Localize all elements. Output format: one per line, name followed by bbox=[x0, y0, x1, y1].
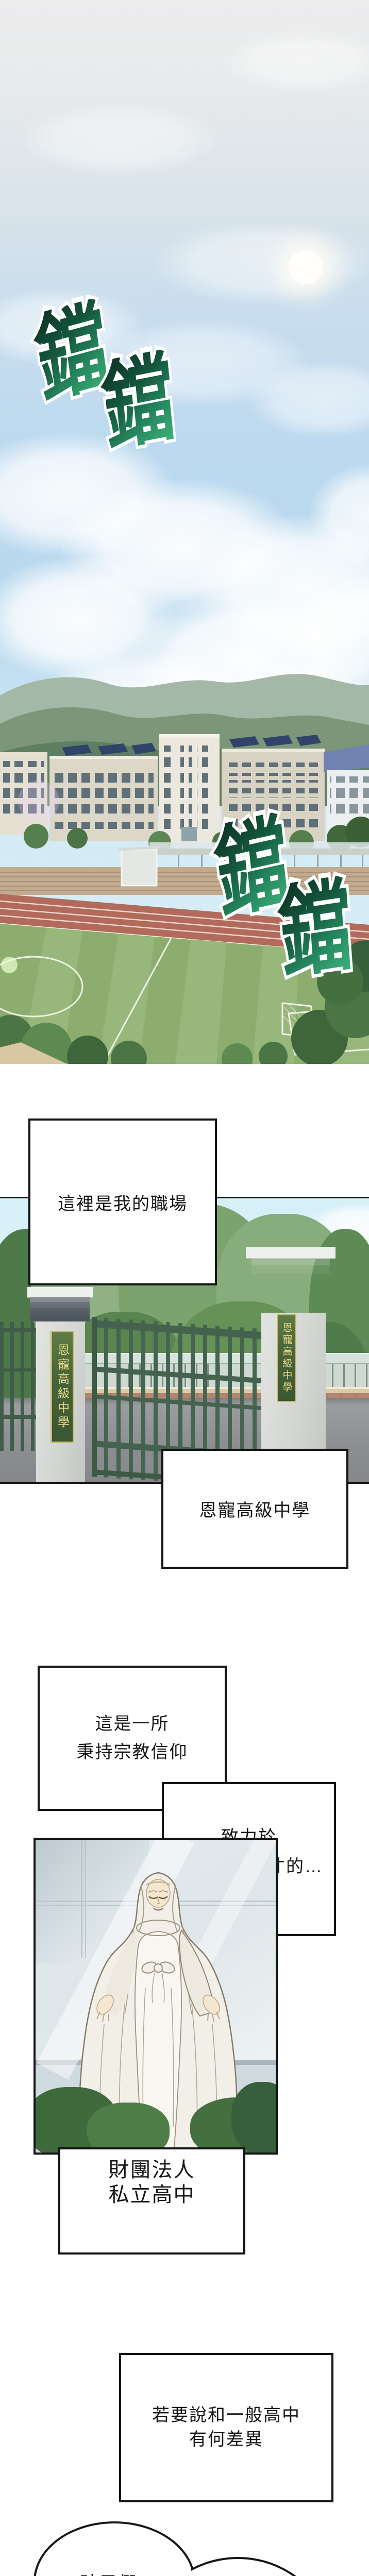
narration-text: 這裡是我的職場 bbox=[58, 1190, 188, 1215]
narration-text: 財團法人 bbox=[109, 2158, 195, 2182]
pillar-cornice bbox=[251, 1258, 330, 1313]
sfx-bell: 鐺 bbox=[98, 348, 177, 459]
fence-rail bbox=[0, 1368, 40, 1371]
narration-text: 恩寵高級中學 bbox=[199, 1496, 311, 1521]
pillar-cap bbox=[246, 1247, 336, 1258]
sfx-bell: 鐺 bbox=[30, 297, 112, 411]
narration-text: 有何差異 bbox=[189, 2428, 263, 2452]
sfx-bell: 鐺 bbox=[275, 875, 354, 986]
campus-illustration bbox=[0, 647, 369, 1064]
narration-box-school-name: 恩寵高級中學 bbox=[161, 1449, 348, 1569]
narration-text: 這是一所 bbox=[95, 1710, 170, 1738]
bubble-text-focus: 上課時間 就該專心啊 bbox=[141, 2557, 335, 2576]
cloud bbox=[155, 222, 369, 304]
statue-panel bbox=[33, 1838, 278, 2155]
gate-fence-left bbox=[0, 1322, 40, 1451]
pillar-cornice bbox=[30, 1297, 90, 1321]
sky-campus-panel: 鐺 鐺 鐺 鐺 鐺 鐺 鐺 鐺 bbox=[0, 0, 369, 1064]
narration-box-workplace: 這裡是我的職場 bbox=[28, 1118, 217, 1285]
cloud bbox=[222, 31, 369, 93]
school-gate-plaque-right: 恩寵高級中學 bbox=[277, 1314, 296, 1402]
pillar-cap bbox=[27, 1287, 93, 1297]
bush bbox=[87, 2103, 170, 2155]
bubble-text: 孩子們~ bbox=[80, 2569, 148, 2576]
webtoon-strip: 鐺 鐺 鐺 鐺 鐺 鐺 鐺 鐺 bbox=[0, 0, 369, 2576]
narration-text: 私立高中 bbox=[109, 2182, 195, 2207]
narration-text: 秉持宗教信仰 bbox=[77, 1738, 188, 1767]
fence-rail bbox=[0, 1415, 40, 1419]
plaque-text: 恩寵高級中學 bbox=[282, 1323, 292, 1394]
box-join bbox=[164, 1784, 225, 1809]
narration-box-difference: 若要說和一般高中 有何差異 bbox=[119, 2353, 333, 2502]
plaque-text: 恩寵高級中學 bbox=[57, 1344, 69, 1430]
fence-rail bbox=[0, 1328, 40, 1332]
cloud bbox=[21, 103, 216, 175]
bush bbox=[231, 2082, 278, 2154]
narration-text: 若要說和一般高中 bbox=[152, 2403, 300, 2428]
school-gate-plaque-left: 恩寵高級中學 bbox=[51, 1331, 74, 1443]
narration-box-foundation: 財團法人 私立高中 bbox=[58, 2147, 245, 2255]
